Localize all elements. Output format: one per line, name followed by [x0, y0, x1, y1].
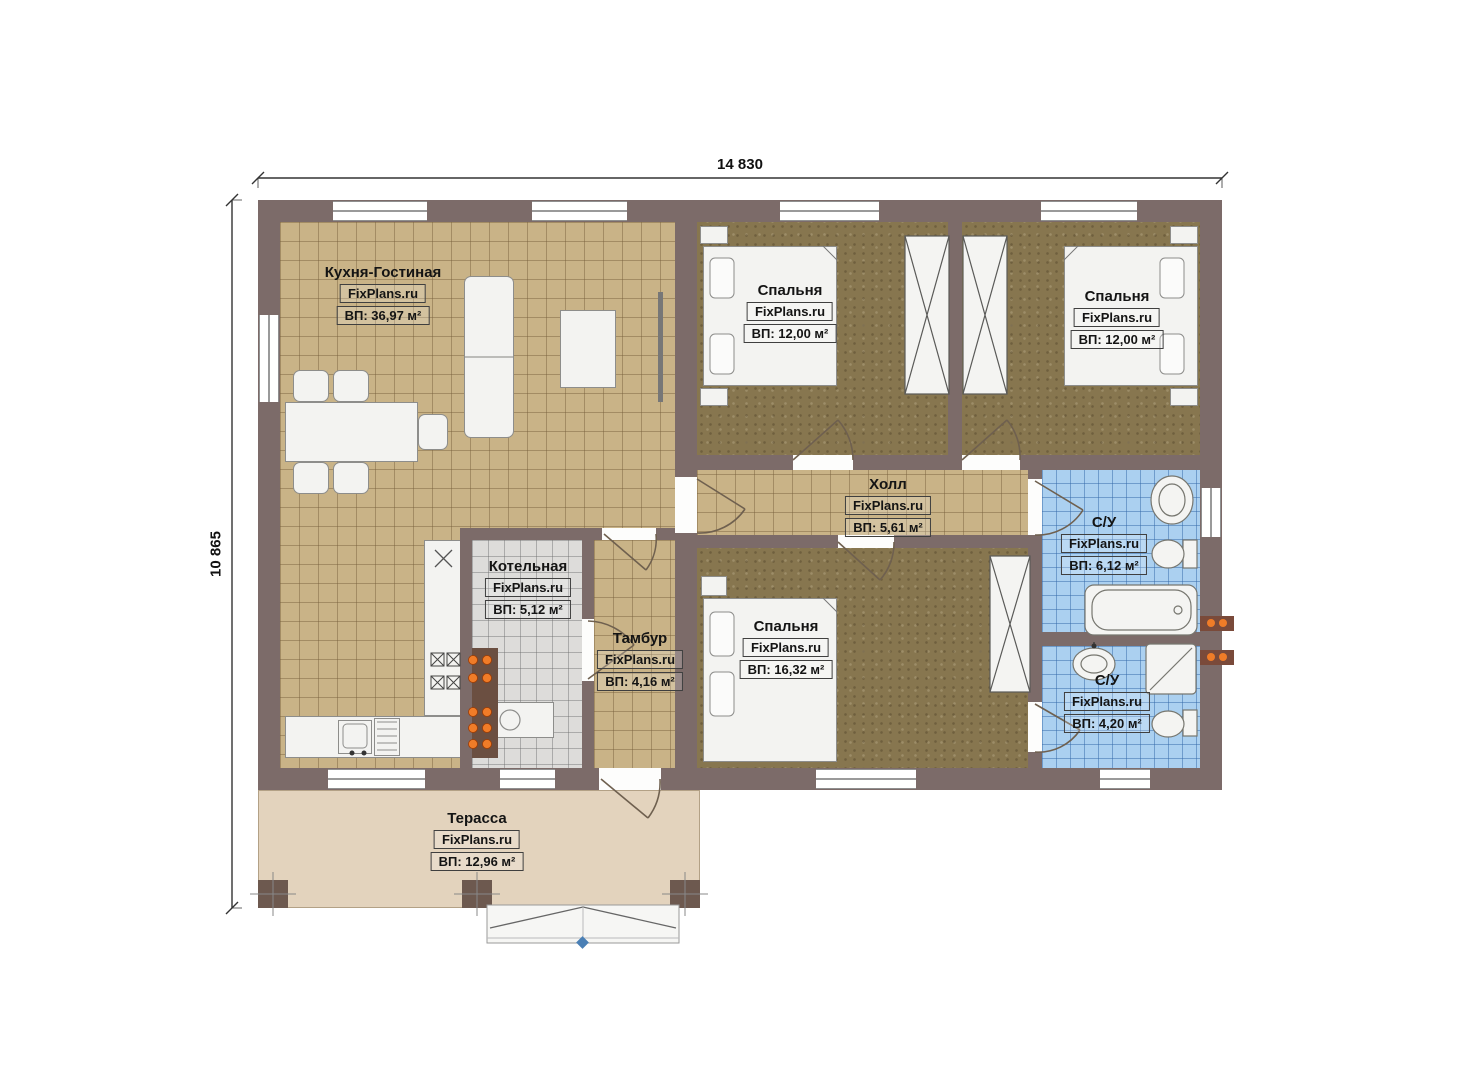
room-label-terrace: Терасса FixPlans.ru ВП: 12,96 м²: [431, 810, 524, 871]
watermark: FixPlans.ru: [743, 638, 829, 657]
door-opening: [582, 619, 594, 681]
washing-machine: [492, 702, 554, 738]
dimension-width: 14 830: [717, 156, 763, 173]
room-area: ВП: 4,20 м²: [1064, 714, 1150, 733]
nightstand: [701, 576, 727, 596]
window: [328, 769, 425, 789]
room-name: Терасса: [447, 810, 506, 827]
room-area: ВП: 12,96 м²: [431, 852, 524, 871]
room-name: С/У: [1092, 514, 1116, 531]
nightstand: [700, 388, 728, 406]
window: [1201, 488, 1221, 537]
watermark: FixPlans.ru: [845, 496, 931, 515]
watermark: FixPlans.ru: [434, 830, 520, 849]
room-area: ВП: 5,12 м²: [485, 600, 571, 619]
terrace-column: [258, 880, 288, 908]
room-label-bedroom-3: Спальня FixPlans.ru ВП: 16,32 м²: [740, 618, 833, 679]
room-name: С/У: [1095, 672, 1119, 689]
room-label-bedroom-1: Спальня FixPlans.ru ВП: 12,00 м²: [744, 282, 837, 343]
room-name: Кухня-Гостиная: [325, 264, 442, 281]
wall-baths-left: [1028, 535, 1042, 702]
watermark: FixPlans.ru: [747, 302, 833, 321]
wall-boiler-left: [460, 528, 472, 768]
nightstand: [1170, 388, 1198, 406]
window: [500, 769, 555, 789]
room-area: ВП: 12,00 м²: [1071, 330, 1164, 349]
chair: [333, 370, 369, 402]
watermark: FixPlans.ru: [597, 650, 683, 669]
room-label-vestibule: Тамбур FixPlans.ru ВП: 4,16 м²: [597, 630, 683, 691]
room-area: ВП: 12,00 м²: [744, 324, 837, 343]
nightstand: [700, 226, 728, 244]
coffee-table: [560, 310, 616, 388]
kitchen-counter-vertical: [424, 540, 462, 716]
room-label-bathroom-1: С/У FixPlans.ru ВП: 6,12 м²: [1061, 514, 1147, 575]
wall-baths-left: [1028, 455, 1042, 479]
nightstand: [1170, 226, 1198, 244]
chair: [418, 414, 448, 450]
dining-table: [285, 402, 418, 462]
wall-bath-divider: [1042, 632, 1200, 646]
wall-baths-left: [1028, 752, 1042, 768]
watermark: FixPlans.ru: [340, 284, 426, 303]
room-area: ВП: 4,16 м²: [597, 672, 683, 691]
sofa: [464, 276, 514, 438]
dish-drainer: [374, 718, 400, 756]
window: [333, 201, 427, 221]
room-name: Спальня: [1085, 288, 1150, 305]
chair: [333, 462, 369, 494]
door-opening: [1028, 479, 1042, 535]
room-name: Спальня: [758, 282, 823, 299]
watermark: FixPlans.ru: [1074, 308, 1160, 327]
room-area: ВП: 36,97 м²: [337, 306, 430, 325]
room-area: ВП: 6,12 м²: [1061, 556, 1147, 575]
tv: [658, 292, 663, 402]
floor-plan: Кухня-Гостиная FixPlans.ru ВП: 36,97 м² …: [0, 0, 1474, 1080]
kitchen-sink: [338, 720, 372, 754]
room-name: Холл: [869, 476, 907, 493]
wall-bedrooms-hall: [853, 455, 962, 470]
room-name: Котельная: [489, 558, 568, 575]
wall-kitchen-bedroom1: [675, 222, 697, 477]
door-opening-entrance: [599, 768, 661, 790]
room-label-kitchen-living: Кухня-Гостиная FixPlans.ru ВП: 36,97 м²: [325, 264, 442, 325]
room-label-boiler-room: Котельная FixPlans.ru ВП: 5,12 м²: [485, 558, 571, 619]
room-name: Спальня: [754, 618, 819, 635]
terrace-column: [462, 880, 492, 908]
door-opening: [675, 477, 697, 533]
wall-bedrooms-hall: [1020, 455, 1200, 470]
wall-bedrooms-hall: [697, 455, 793, 470]
chair: [293, 462, 329, 494]
wall-outer-left: [258, 200, 280, 790]
watermark: FixPlans.ru: [1061, 534, 1147, 553]
room-label-bedroom-2: Спальня FixPlans.ru ВП: 12,00 м²: [1071, 288, 1164, 349]
terrace-column: [670, 880, 700, 908]
room-area: ВП: 16,32 м²: [740, 660, 833, 679]
room-label-hall: Холл FixPlans.ru ВП: 5,61 м²: [845, 476, 931, 537]
entrance-steps: [487, 905, 679, 949]
room-area: ВП: 5,61 м²: [845, 518, 931, 537]
window: [1100, 769, 1150, 789]
wall-bedroom-divider: [948, 222, 962, 455]
room-label-bathroom-2: С/У FixPlans.ru ВП: 4,20 м²: [1064, 672, 1150, 733]
wall-boiler-top: [460, 528, 602, 540]
watermark: FixPlans.ru: [1064, 692, 1150, 711]
door-opening: [1028, 702, 1042, 752]
window: [780, 201, 879, 221]
wall-hall-bedroom3: [697, 535, 838, 548]
watermark: FixPlans.ru: [485, 578, 571, 597]
door-opening: [962, 455, 1020, 470]
window: [816, 769, 916, 789]
wall-boiler-right: [582, 528, 594, 619]
window: [259, 315, 279, 402]
door-opening: [602, 528, 656, 540]
wall-boiler-right: [582, 681, 594, 768]
door-opening: [793, 455, 853, 470]
room-name: Тамбур: [613, 630, 667, 647]
dimension-height: 10 865: [208, 531, 225, 577]
step-marker: [576, 936, 589, 949]
window: [1041, 201, 1137, 221]
chair: [293, 370, 329, 402]
window: [532, 201, 627, 221]
wall-boiler-top: [656, 528, 675, 540]
